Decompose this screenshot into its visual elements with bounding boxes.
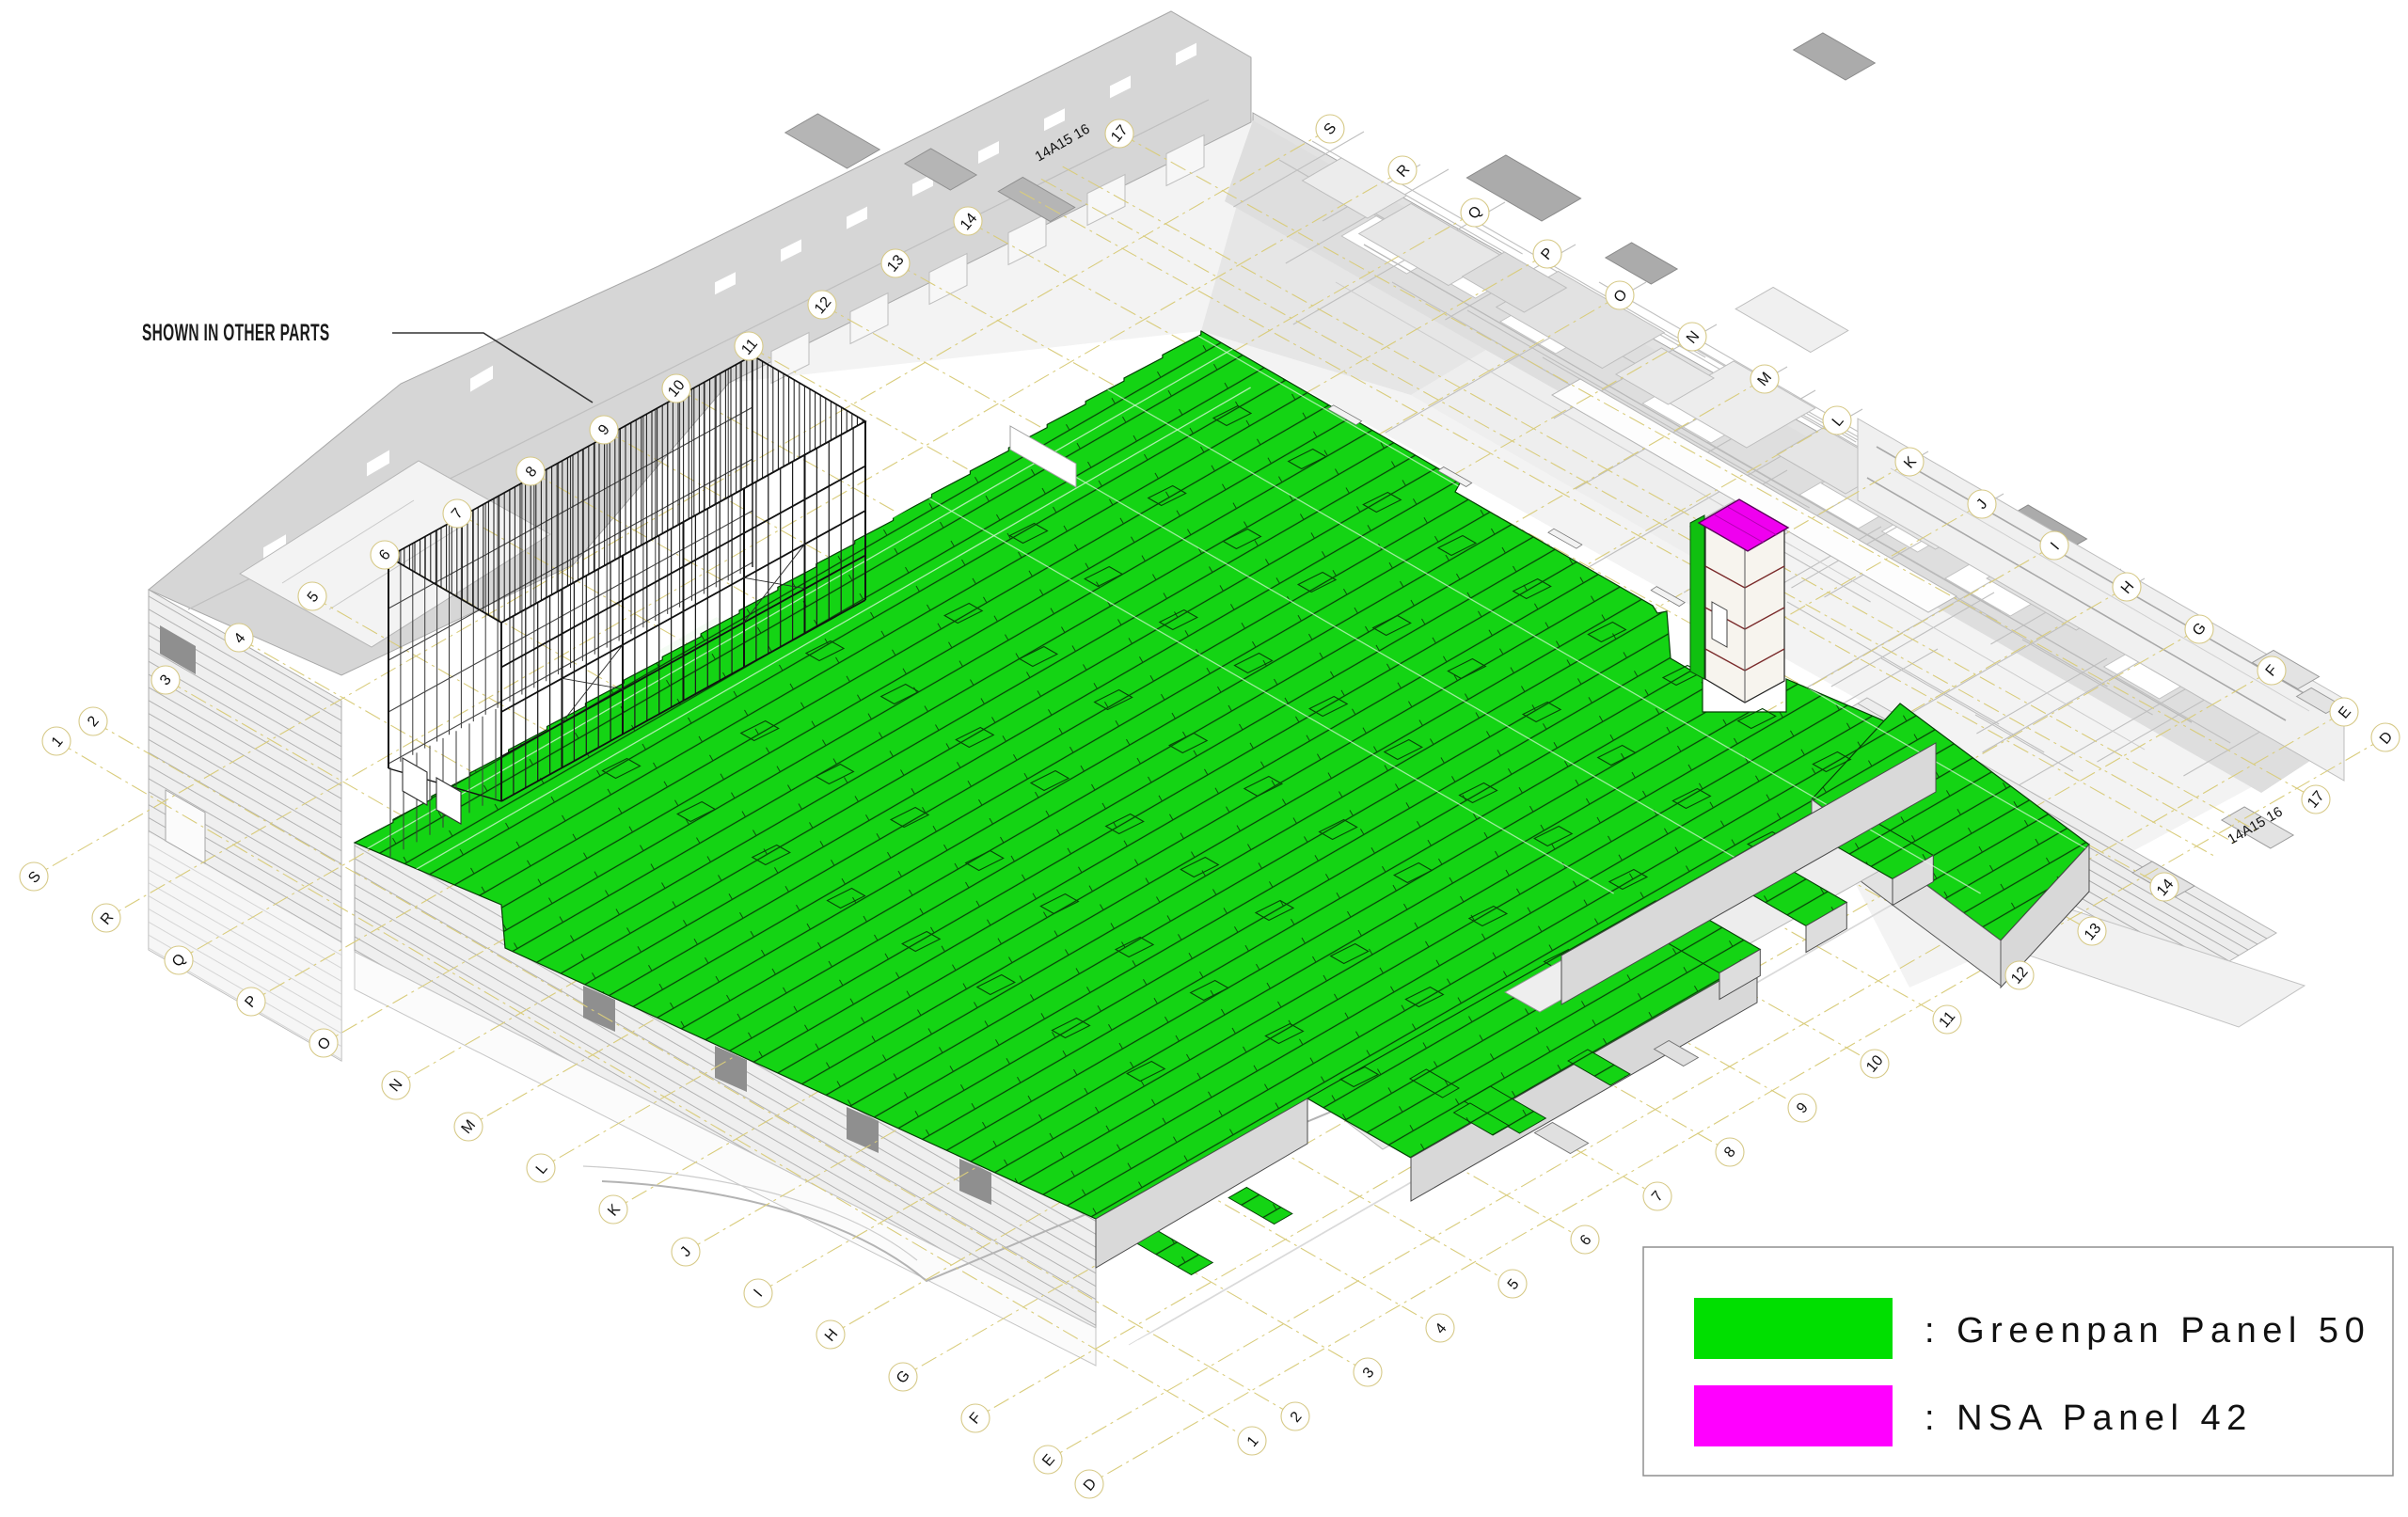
- svg-text:SHOWN IN OTHER PARTS: SHOWN IN OTHER PARTS: [142, 320, 329, 346]
- svg-text:: NSA Panel 42: : NSA Panel 42: [1925, 1398, 2253, 1438]
- svg-text:: Greenpan Panel 50: : Greenpan Panel 50: [1925, 1311, 2370, 1351]
